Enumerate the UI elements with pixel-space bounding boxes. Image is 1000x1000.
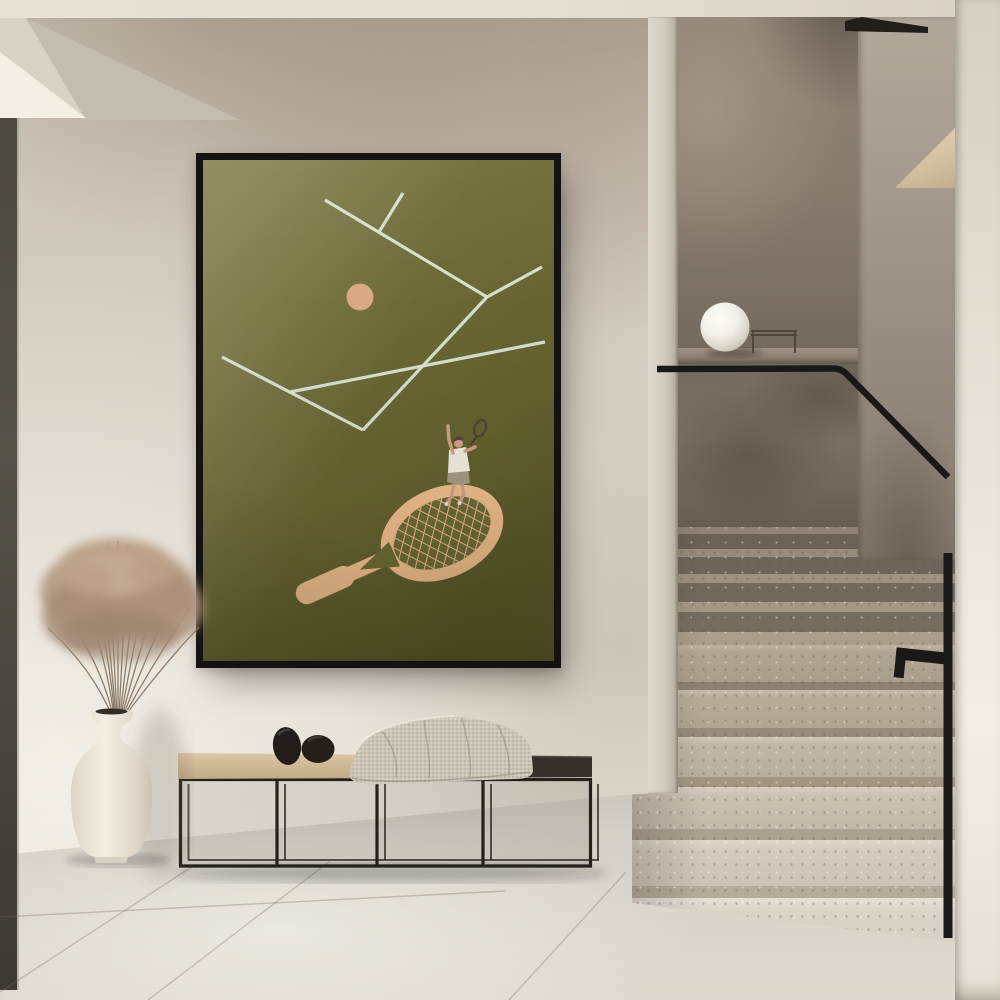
tennis-poster-artwork (203, 160, 554, 661)
stair-back-wall (675, 17, 860, 349)
stair-side-wall (858, 17, 955, 560)
tennis-ball-icon (347, 284, 374, 311)
left-door-frame (0, 95, 17, 990)
poster-background (203, 160, 554, 661)
stair-parapet (675, 364, 860, 527)
interior-scene (0, 0, 1000, 1000)
right-wall-column (955, 0, 1000, 1000)
wall-corner-edge (648, 17, 678, 793)
staircase-steps (632, 520, 957, 955)
stair-landing-ledge (675, 348, 860, 365)
tennis-poster-frame (196, 153, 561, 668)
ceiling (0, 0, 1000, 18)
